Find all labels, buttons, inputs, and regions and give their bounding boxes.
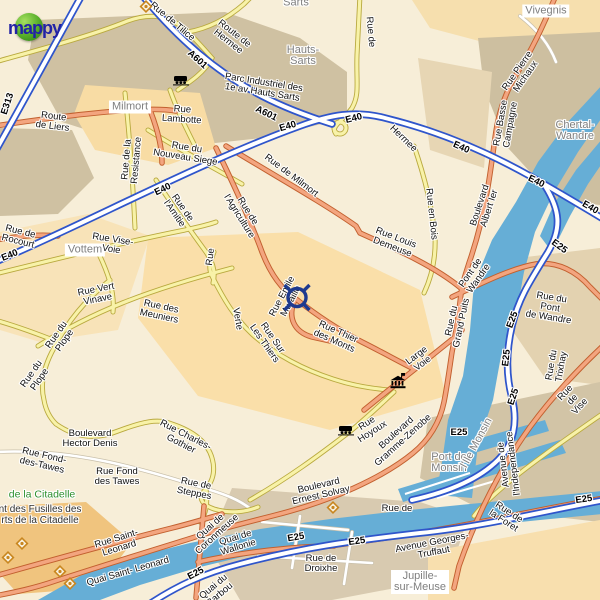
poi-diamond-icon[interactable]	[326, 500, 341, 520]
poi-diamond-icon[interactable]	[15, 536, 30, 556]
poi-diamond-icon[interactable]	[139, 0, 154, 19]
mappy-logo[interactable]: mappy	[6, 12, 76, 44]
train-station-icon[interactable]	[173, 73, 189, 91]
monument-icon[interactable]	[390, 373, 407, 395]
map-canvas[interactable]: SartsHauts- SartsMilmortVivegnisChertal-…	[0, 0, 600, 600]
train-station-icon[interactable]	[338, 423, 354, 441]
destination-marker[interactable]	[278, 279, 316, 322]
poi-diamond-icon[interactable]	[63, 576, 78, 596]
map-icons-layer	[0, 0, 600, 600]
poi-diamond-icon[interactable]	[1, 550, 16, 570]
mappy-logo-text: mappy	[8, 18, 61, 39]
